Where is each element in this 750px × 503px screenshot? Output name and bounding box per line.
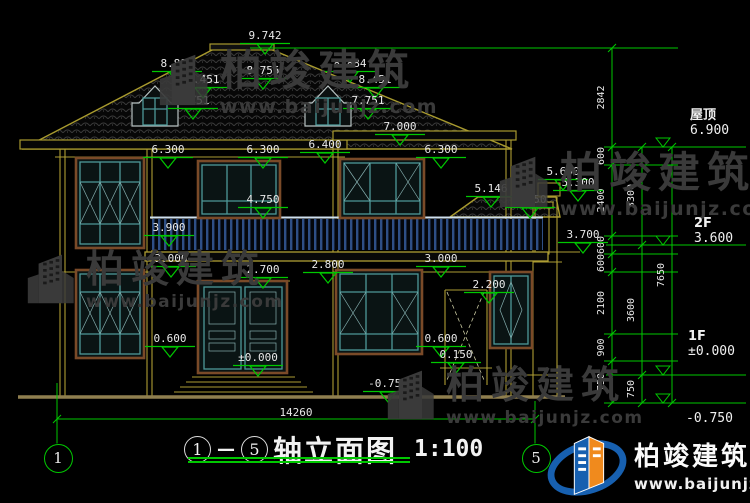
elevation-label: 5.600 (538, 166, 588, 191)
drawing-scale: 1:100 (414, 436, 483, 462)
brand-logo-icon (546, 428, 630, 500)
brand-logo-url: www.baijunjz.com (634, 475, 750, 493)
elevation-label: 8.451 (178, 74, 228, 99)
elevation-label: 0.600 (145, 333, 195, 358)
elevation-label: 8.755 (238, 65, 288, 90)
elevation-label: 4.750 (238, 194, 288, 219)
elevation-label: 6.300 (416, 144, 466, 169)
elevation-label: 5.300 (553, 177, 603, 202)
drawing-title-text: 轴立面图 (273, 428, 397, 470)
elevation-label: 3.000 (146, 253, 196, 278)
elevation-label: 8.884 (152, 58, 202, 83)
elevation-label: 6.400 (300, 139, 350, 164)
elevation-label: 8.884 (325, 58, 375, 83)
elevation-label: 0.600 (416, 333, 466, 358)
elevation-label: 2.200 (464, 279, 514, 304)
elevation-label: 9.742 (240, 30, 290, 55)
axis-bubble-1: 1 (44, 444, 73, 473)
elevation-label: 7.751 (343, 95, 393, 120)
elevation-label: 7.000 (375, 121, 425, 146)
elevation-label: 6.300 (238, 144, 288, 169)
elevation-label: 5.146 (466, 183, 516, 208)
elevation-label: ±0.000 (233, 352, 283, 377)
elevation-drawing-canvas: 2842600240060060021009007503300360075076… (0, 0, 750, 503)
title-underline (188, 457, 410, 459)
elevation-label: 3.700 (558, 229, 608, 254)
elevation-label: 4.750 (505, 194, 555, 219)
elevation-label: 3.900 (144, 222, 194, 247)
elevation-label: 6.300 (143, 144, 193, 169)
elevation-label: 8.451 (350, 74, 400, 99)
elevation-label: -0.750 (363, 378, 413, 403)
title-underline (188, 461, 410, 463)
brand-logo-title: 柏竣建筑 (634, 436, 750, 473)
elevation-label: 2.700 (238, 264, 288, 289)
elevation-label: 2.800 (303, 259, 353, 284)
axis-bubble-5: 5 (522, 444, 551, 473)
elevation-label: 7.751 (168, 95, 218, 120)
elevation-label: 0.150 (431, 349, 481, 374)
overall-width-dimension: 14260 (261, 406, 331, 419)
elevation-label: 3.000 (416, 253, 466, 278)
brand-logo: 柏竣建筑 www.baijunjz.com (546, 428, 750, 500)
drawing-title: 1 — 5 轴立面图 1:100 (184, 428, 483, 470)
